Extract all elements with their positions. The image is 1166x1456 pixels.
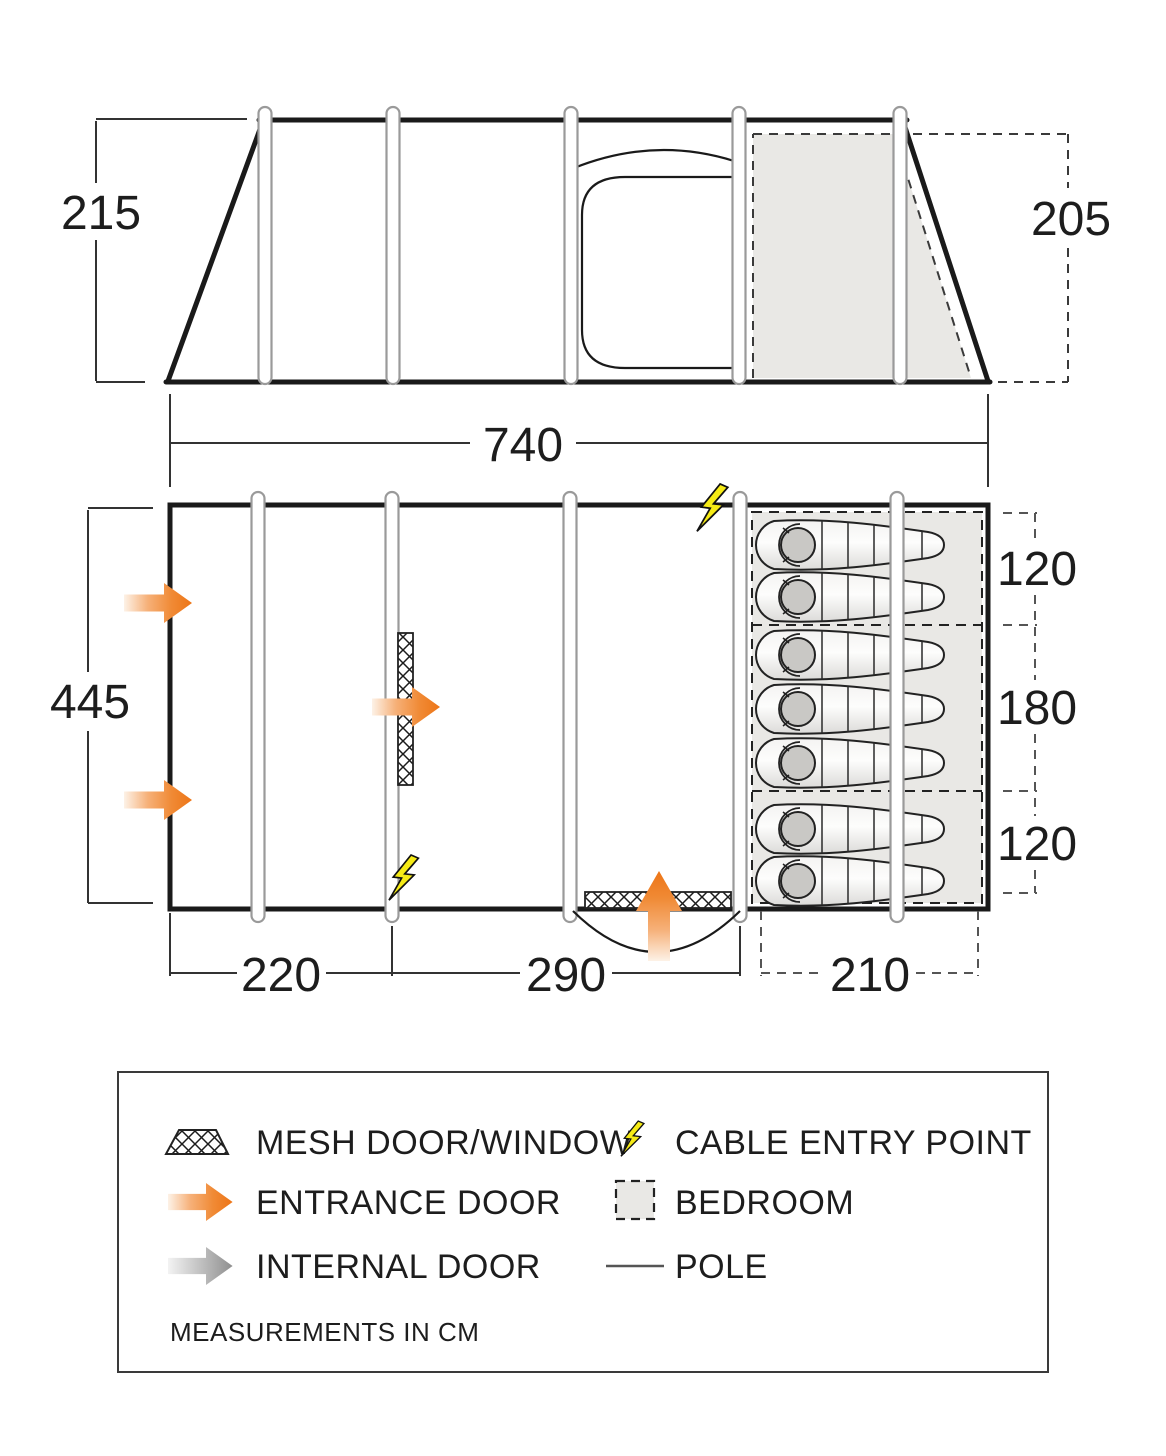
tent-pole: [894, 107, 907, 384]
side-left-slope: [168, 121, 263, 381]
tent-pole: [891, 492, 904, 922]
legend-bedroom-label: BEDROOM: [675, 1184, 854, 1222]
dim-215-label: 215: [61, 187, 141, 240]
tent-pole: [565, 107, 578, 384]
dim-120-top-label: 120: [997, 543, 1077, 596]
legend-entrance-label: ENTRANCE DOOR: [256, 1184, 561, 1222]
tent-diagram-page: 215 205 740: [0, 0, 1166, 1456]
floorplan: 445 120 180 120 220 290 210: [50, 484, 1077, 1002]
dim-120-bottom-label: 120: [997, 818, 1077, 871]
tent-pole: [387, 107, 400, 384]
dim-445-label: 445: [50, 676, 130, 729]
tent-pole: [734, 492, 747, 922]
legend-cable-label: CABLE ENTRY POINT: [675, 1124, 1032, 1162]
legend-internal-label: INTERNAL DOOR: [256, 1248, 541, 1286]
bedroom-swatch-icon: [616, 1181, 654, 1219]
side-window: [582, 177, 733, 368]
dim-290-label: 290: [526, 949, 606, 1002]
tent-pole: [252, 492, 265, 922]
tent-floorplan-diagram: 215 205 740: [0, 0, 1166, 1456]
legend-measurements-note: MEASUREMENTS IN CM: [170, 1317, 479, 1347]
legend-mesh-label: MESH DOOR/WINDOW: [256, 1124, 632, 1162]
tent-pole: [259, 107, 272, 384]
tent-pole: [564, 492, 577, 922]
dim-210-label: 210: [830, 949, 910, 1002]
dim-205-label: 205: [1031, 193, 1111, 246]
legend-pole-label: POLE: [675, 1248, 768, 1286]
tent-pole: [733, 107, 746, 384]
side-bedroom-shade: [753, 134, 971, 378]
side-elevation: 215 205 740: [61, 107, 1111, 487]
dim-740-label: 740: [483, 419, 563, 472]
dim-180-label: 180: [997, 682, 1077, 735]
side-window-awning-arc: [574, 150, 734, 168]
legend: MESH DOOR/WINDOW CABLE ENTRY POINT ENTRA…: [118, 1072, 1048, 1372]
dim-220-label: 220: [241, 949, 321, 1002]
